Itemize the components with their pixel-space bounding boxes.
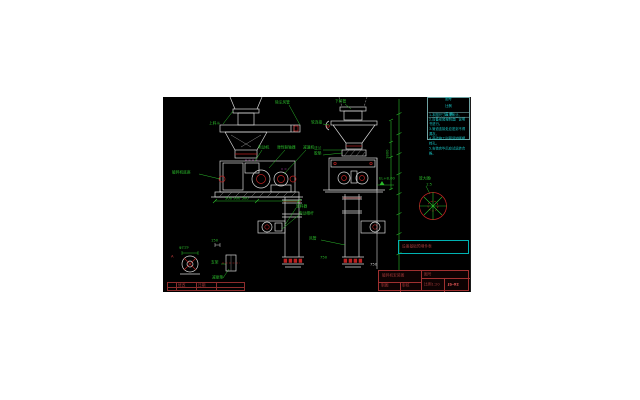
- schedule-strip: 设备基础预埋件表: [398, 240, 469, 254]
- revision-divider: [216, 283, 217, 290]
- label-down-pipe: 下料管: [335, 100, 346, 104]
- label-diameter: φ219: [179, 246, 189, 250]
- title-checker: 审核: [402, 284, 409, 288]
- label-push-rod: 电动推杆: [299, 212, 314, 216]
- label-coupling: 弹性联轴器: [277, 146, 296, 150]
- right-machine-side: [323, 107, 385, 192]
- note-line: 3.管道连接处应密封不得漏灰。: [429, 127, 467, 137]
- notes-block: 图号 比例 说 明 1.本图尺寸以毫米计。 2.设备安装按制造厂说明书进行。 3…: [427, 97, 470, 140]
- title-drafter: 制图: [381, 284, 388, 288]
- note-line: 4.基础施工时预留地脚螺栓孔。: [429, 137, 467, 147]
- note-line: 2.设备安装按制造厂说明书进行。: [429, 118, 467, 128]
- notes-header-small-2: 比例: [437, 105, 460, 109]
- label-air-duct: 风管: [309, 237, 316, 241]
- label-valve: 卸料器: [296, 205, 307, 209]
- right-machine-red-parts: [327, 125, 373, 181]
- label-damper: 减振垫: [212, 276, 223, 280]
- label-reducer: 减速机: [303, 146, 314, 150]
- label-el-mark: EL+8.00: [379, 177, 395, 181]
- title-no-label: 图号: [424, 273, 431, 277]
- label-support: 支架: [211, 261, 218, 265]
- label-soft-joint: 软连接: [311, 121, 322, 125]
- title-block-divider: [421, 271, 422, 290]
- left-machine-magenta-accents: [245, 160, 289, 169]
- notes-body: 1.本图尺寸以毫米计。 2.设备安装按制造厂说明书进行。 3.管道连接处应密封不…: [429, 113, 467, 156]
- cad-drawing-canvas: 上料斗 破碎机底座 电动机 弹性联轴器 减速机 除尘风管 下料管 软连接 法兰 …: [163, 97, 471, 292]
- detail-circle: [419, 192, 447, 220]
- title-block: 破碎机安装图 图号 制图 审核 比例1:20 JS-02: [378, 270, 469, 291]
- title-block-divider: [421, 278, 470, 279]
- label-dim-150: 150: [211, 239, 218, 243]
- title-block-divider: [400, 282, 401, 292]
- note-line: 5.安装完毕后应试运转合格。: [429, 146, 467, 156]
- revision-cell-2: 日期: [198, 284, 205, 288]
- label-dim-right: 1800: [386, 150, 390, 159]
- label-detail-scale: 1:5: [426, 183, 432, 187]
- left-machine-red-parts: [219, 126, 298, 184]
- label-flange: 法兰: [314, 147, 321, 151]
- schedule-title: 设备基础预埋件表: [402, 245, 432, 249]
- title-project: 破碎机安装图: [382, 274, 404, 278]
- revision-divider: [196, 283, 197, 290]
- revision-table: 修改 日期: [167, 282, 245, 291]
- cad-linework: [163, 97, 470, 292]
- label-dims-left: 500 900 500: [225, 197, 249, 201]
- label-ref-750: 750: [370, 263, 377, 267]
- right-machine-hatch: [344, 150, 365, 156]
- label-section-a: A: [171, 255, 174, 259]
- left-machine-hatch: [219, 135, 296, 197]
- label-motor: 电动机: [258, 146, 269, 150]
- title-drawing-number: JS-02: [448, 283, 459, 287]
- label-hopper: 上料斗: [209, 122, 220, 126]
- label-base: 破碎机底座: [172, 171, 191, 175]
- notes-header-small-1: 图号: [437, 98, 460, 102]
- label-dust-duct: 除尘风管: [275, 101, 290, 105]
- revision-divider: [176, 283, 177, 290]
- page: 上料斗 破碎机底座 电动机 弹性联轴器 减速机 除尘风管 下料管 软连接 法兰 …: [0, 0, 640, 400]
- revision-cell-1: 修改: [178, 284, 185, 288]
- label-detail-title: 放大图Ⅰ: [419, 177, 431, 181]
- foundation-details: [180, 243, 240, 274]
- title-block-divider: [444, 278, 445, 292]
- title-scale: 比例1:20: [424, 283, 440, 287]
- label-gasket: 胶垫: [314, 152, 321, 156]
- label-bottom-750: 750: [320, 256, 327, 260]
- leader-lines: [199, 104, 430, 278]
